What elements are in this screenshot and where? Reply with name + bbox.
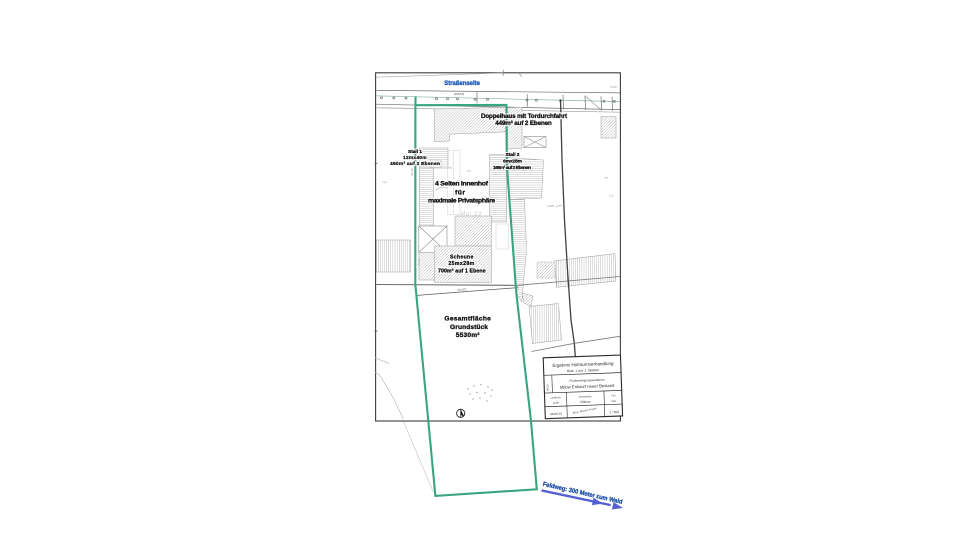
svg-text:(94.97): (94.97) <box>457 287 466 292</box>
svg-text:09.06.22: 09.06.22 <box>550 412 562 416</box>
svg-text:maximale Privatsphäre: maximale Privatsphäre <box>428 197 495 204</box>
svg-text:für: für <box>455 190 465 197</box>
svg-text:(298.50): (298.50) <box>454 92 464 96</box>
svg-text:Flur: Flur <box>611 394 615 397</box>
svg-text:ufg: ufg <box>448 166 453 170</box>
svg-text:5530m²: 5530m² <box>456 332 481 339</box>
svg-text:12mx40m: 12mx40m <box>403 155 427 161</box>
svg-text:Hex: Hex <box>611 399 616 403</box>
svg-text:6mx28m: 6mx28m <box>503 158 523 164</box>
svg-text:ufg: ufg <box>383 180 388 184</box>
svg-text:Scheune: Scheune <box>450 255 473 261</box>
svg-text:P40b: P40b <box>610 85 617 89</box>
svg-text:Straßenseite: Straßenseite <box>444 80 480 87</box>
svg-text:Mai 23: Mai 23 <box>461 212 482 218</box>
svg-text:17g: 17g <box>609 194 614 198</box>
svg-text:59.64: 59.64 <box>515 284 520 291</box>
svg-text:449m² auf 2 Ebenen: 449m² auf 2 Ebenen <box>495 120 552 127</box>
svg-text:Dübow: Dübow <box>580 400 591 404</box>
svg-text:Grundstück: Grundstück <box>450 324 488 331</box>
svg-text:99.09: 99.09 <box>545 384 549 391</box>
svg-text:ufg: ufg <box>604 176 609 180</box>
svg-text:25mx28m: 25mx28m <box>448 261 474 267</box>
svg-text:Gesamtfläche: Gesamtfläche <box>444 316 491 323</box>
svg-text:460m² auf 2 Ebenen: 460m² auf 2 Ebenen <box>390 161 440 167</box>
svg-text:1 : 500: 1 : 500 <box>609 410 619 414</box>
svg-text:4 Seiten Innenhof: 4 Seiten Innenhof <box>435 180 489 187</box>
svg-text:Stall 2: Stall 2 <box>506 152 520 158</box>
svg-text:168m² auf 2 Ebenen: 168m² auf 2 Ebenen <box>493 165 531 171</box>
svg-text:ufg: ufg <box>467 169 472 173</box>
svg-text:Stall 1: Stall 1 <box>408 149 422 155</box>
svg-text:700m² auf 1 Ebene: 700m² auf 1 Ebene <box>438 268 486 274</box>
svg-text:Doppelhaus mit Tordurchfahrt: Doppelhaus mit Tordurchfahrt <box>481 113 567 120</box>
svg-text:Landkreis: Landkreis <box>550 396 561 399</box>
svg-text:Bu.92: Bu.92 <box>417 258 421 266</box>
svg-text:LUP: LUP <box>553 401 559 405</box>
svg-text:(29.43): (29.43) <box>410 168 414 176</box>
svg-text:Gemarkung: Gemarkung <box>579 395 592 398</box>
